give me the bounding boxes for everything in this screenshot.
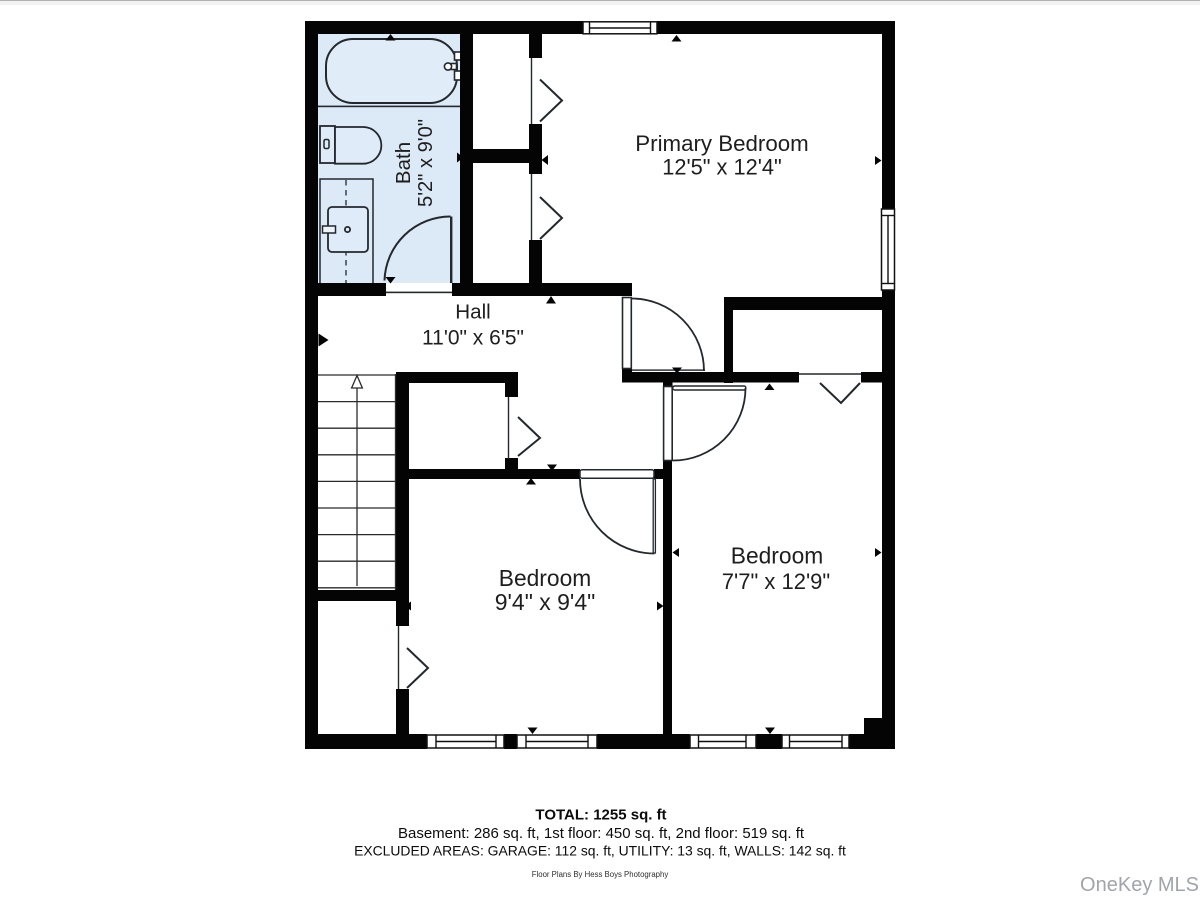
svg-text:12'5" x 12'4": 12'5" x 12'4" — [662, 155, 782, 180]
svg-text:OneKey MLS: OneKey MLS — [1080, 874, 1199, 896]
svg-text:Floor Plans By Hess Boys Photo: Floor Plans By Hess Boys Photography — [532, 870, 669, 879]
svg-text:Bedroom: Bedroom — [499, 565, 592, 591]
svg-text:7'7" x 12'9": 7'7" x 12'9" — [722, 569, 830, 594]
svg-text:TOTAL: 1255 sq. ft: TOTAL: 1255 sq. ft — [535, 807, 666, 824]
svg-text:11'0" x 6'5": 11'0" x 6'5" — [422, 327, 524, 350]
svg-text:Basement: 286 sq. ft, 1st floo: Basement: 286 sq. ft, 1st floor: 450 sq.… — [398, 825, 805, 842]
svg-text:Bedroom: Bedroom — [731, 543, 824, 569]
svg-text:Hall: Hall — [455, 301, 490, 324]
svg-text:9'4" x 9'4": 9'4" x 9'4" — [495, 589, 596, 615]
svg-text:Primary Bedroom: Primary Bedroom — [635, 131, 808, 156]
svg-text:EXCLUDED AREAS: GARAGE: 112 sq: EXCLUDED AREAS: GARAGE: 112 sq. ft, UTIL… — [354, 843, 846, 859]
